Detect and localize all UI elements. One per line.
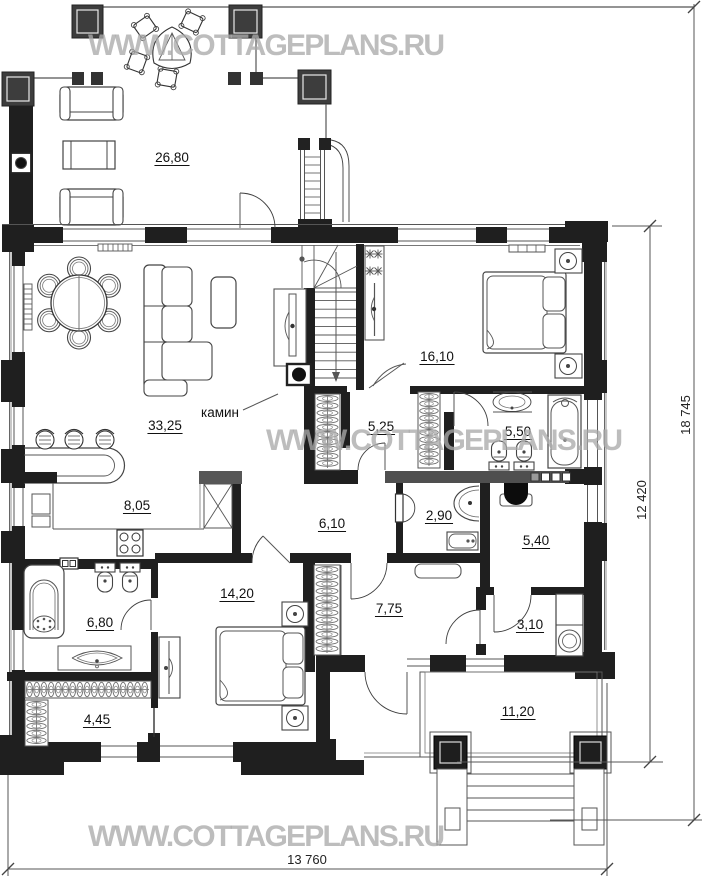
svg-text:6,10: 6,10 — [319, 516, 345, 531]
svg-text:WWW.COTTAGEPLANS.RU: WWW.COTTAGEPLANS.RU — [266, 424, 621, 457]
svg-text:8,05: 8,05 — [124, 498, 150, 513]
svg-text:7,75: 7,75 — [376, 601, 402, 616]
svg-text:16,10: 16,10 — [420, 349, 454, 364]
svg-text:18 745: 18 745 — [678, 395, 693, 435]
svg-text:6,80: 6,80 — [87, 615, 113, 630]
svg-text:WWW.COTTAGEPLANS.RU: WWW.COTTAGEPLANS.RU — [88, 29, 443, 62]
svg-text:5,40: 5,40 — [523, 533, 549, 548]
svg-text:камин: камин — [201, 405, 239, 420]
svg-text:2,90: 2,90 — [426, 508, 452, 523]
svg-text:12 420: 12 420 — [634, 480, 649, 520]
svg-text:26,80: 26,80 — [155, 150, 189, 165]
svg-text:11,20: 11,20 — [502, 704, 535, 719]
svg-text:33,25: 33,25 — [148, 418, 182, 433]
svg-text:13 760: 13 760 — [287, 852, 327, 867]
svg-text:14,20: 14,20 — [220, 586, 254, 601]
svg-text:WWW.COTTAGEPLANS.RU: WWW.COTTAGEPLANS.RU — [88, 820, 443, 853]
svg-text:3,10: 3,10 — [517, 617, 543, 632]
svg-text:4,45: 4,45 — [84, 712, 110, 727]
